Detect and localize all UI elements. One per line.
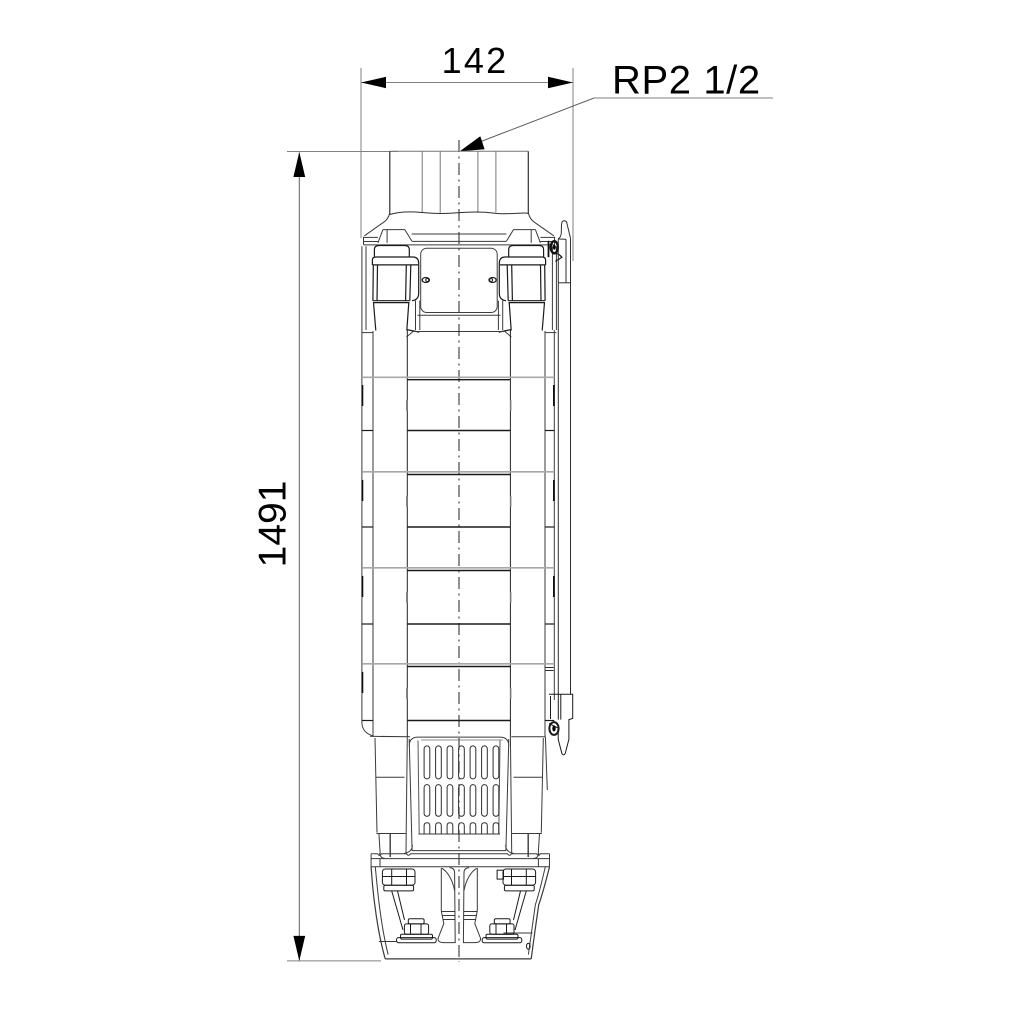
svg-text:142: 142 (442, 40, 509, 81)
svg-text:RP2 1/2: RP2 1/2 (612, 59, 761, 103)
svg-text:1491: 1491 (252, 481, 295, 568)
